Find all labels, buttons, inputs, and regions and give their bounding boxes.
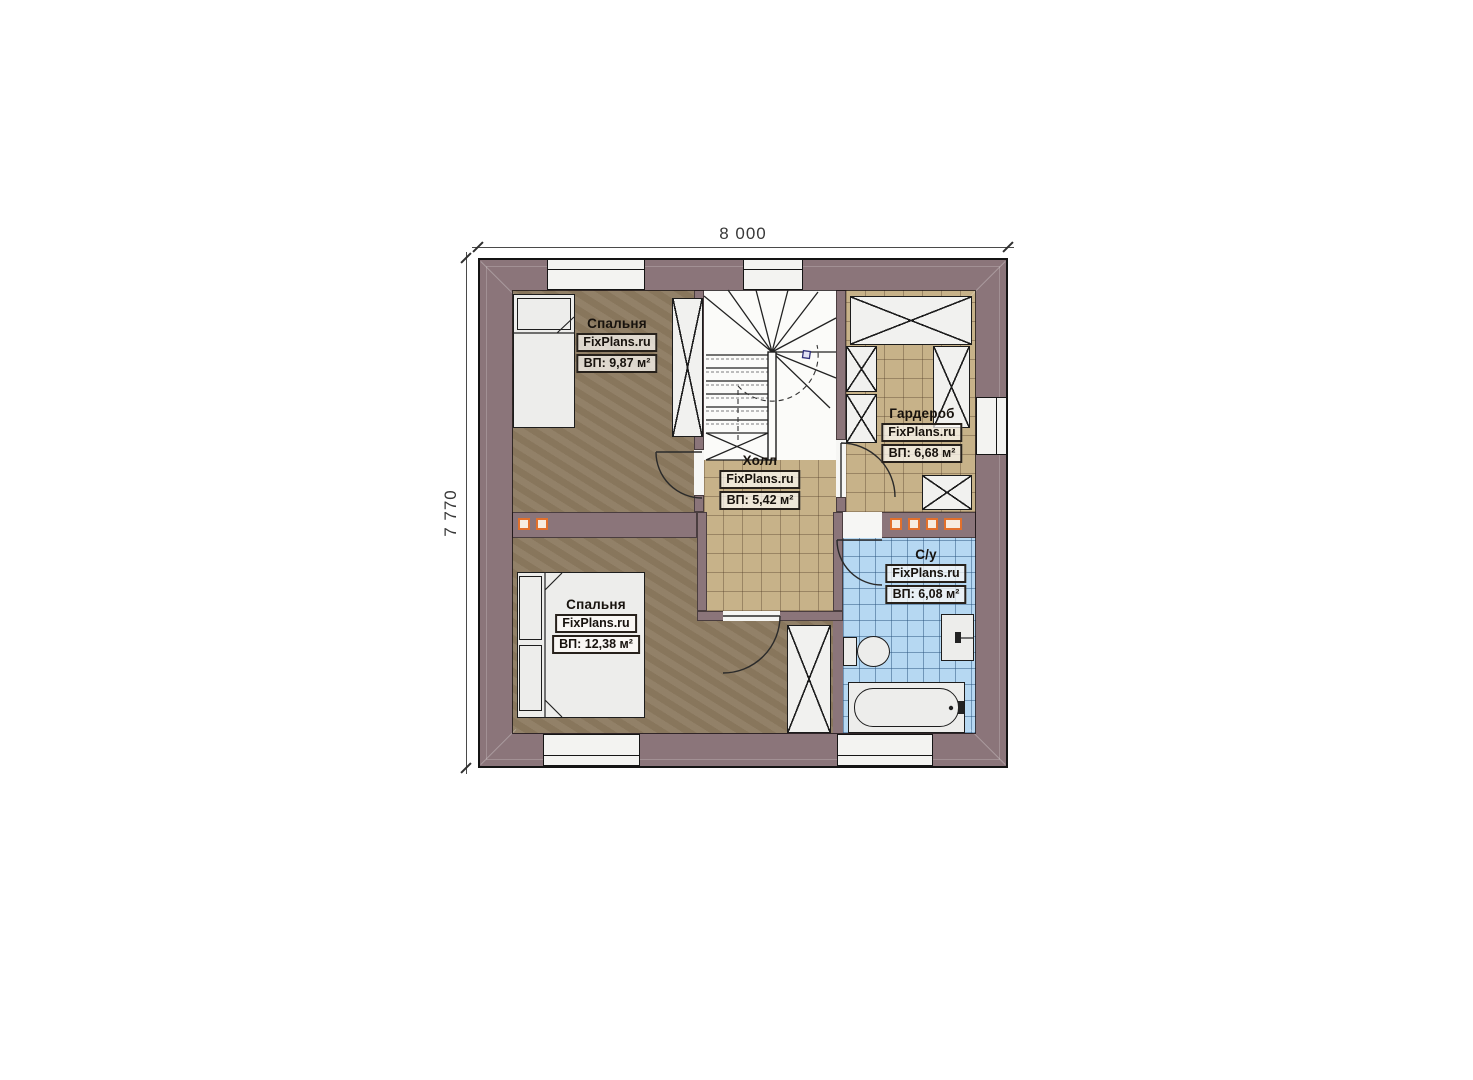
vent-block [926, 518, 938, 530]
vent-block [536, 518, 548, 530]
room-area: ВП: 12,38 м² [552, 635, 640, 654]
roof-hip-line [970, 261, 1006, 297]
toilet-tank [843, 637, 857, 666]
vent-block [890, 518, 902, 530]
watermark: FixPlans.ru [719, 470, 800, 489]
watermark: FixPlans.ru [885, 564, 966, 583]
door-opening-bedroom-1 [694, 450, 704, 495]
room-label-wardrobe: Гардероб FixPlans.ru ВП: 6,68 м² [881, 406, 962, 463]
roof-hip-line [970, 729, 1006, 765]
pillow [519, 576, 542, 640]
room-label-bedroom-2: Спальня FixPlans.ru ВП: 12,38 м² [552, 597, 640, 654]
wardrobe-cabinet [846, 394, 877, 443]
room-label-hall: Холл FixPlans.ru ВП: 5,42 м² [719, 453, 800, 510]
floor-plan-canvas: 8 000 7 770 [0, 0, 1473, 1080]
bathtub-basin [854, 688, 959, 727]
wall [836, 497, 846, 512]
sink [941, 614, 974, 661]
room-label-bathroom: С/у FixPlans.ru ВП: 6,08 м² [885, 547, 966, 604]
room-area: ВП: 9,87 м² [577, 354, 658, 373]
room-name: Холл [743, 453, 778, 468]
window [976, 397, 1007, 455]
window [837, 734, 933, 766]
pillow [519, 645, 542, 711]
door-opening-bedroom-2 [723, 611, 780, 621]
wardrobe-cabinet [672, 298, 703, 437]
door-opening-bathroom [843, 512, 882, 538]
room-area: ВП: 6,68 м² [882, 444, 963, 463]
vent-block [908, 518, 920, 530]
watermark: FixPlans.ru [881, 423, 962, 442]
wall [833, 512, 843, 611]
toilet-bowl [857, 636, 890, 667]
room-label-bedroom-1: Спальня FixPlans.ru ВП: 9,87 м² [576, 316, 657, 373]
watermark: FixPlans.ru [576, 333, 657, 352]
wall [697, 512, 707, 611]
staircase-floor [704, 290, 836, 460]
window [547, 259, 645, 290]
room-name: Спальня [566, 597, 626, 612]
dimension-height-line [466, 252, 467, 774]
wardrobe-cabinet [850, 296, 972, 345]
room-name: Гардероб [889, 406, 954, 421]
door-opening-wardrobe [836, 440, 846, 497]
wardrobe-cabinet [922, 475, 972, 510]
vent-block [944, 518, 962, 530]
roof-hip-line [480, 261, 516, 297]
building-outline: Спальня FixPlans.ru ВП: 9,87 м² Гардероб… [478, 258, 1008, 768]
wall [836, 290, 846, 440]
roof-hip-line [480, 729, 516, 765]
room-name: С/у [915, 547, 937, 562]
wardrobe-cabinet [846, 346, 877, 392]
wall [694, 495, 704, 512]
vent-block [518, 518, 530, 530]
pillow [517, 298, 571, 330]
dimension-height-label: 7 770 [441, 483, 461, 543]
dimension-width-line [472, 247, 1014, 248]
room-name: Спальня [587, 316, 647, 331]
room-area: ВП: 6,08 м² [886, 585, 967, 604]
watermark: FixPlans.ru [555, 614, 636, 633]
window [543, 734, 640, 766]
dimension-width-label: 8 000 [478, 224, 1008, 244]
room-area: ВП: 5,42 м² [720, 491, 801, 510]
window [743, 259, 803, 290]
wardrobe-cabinet [787, 625, 831, 733]
